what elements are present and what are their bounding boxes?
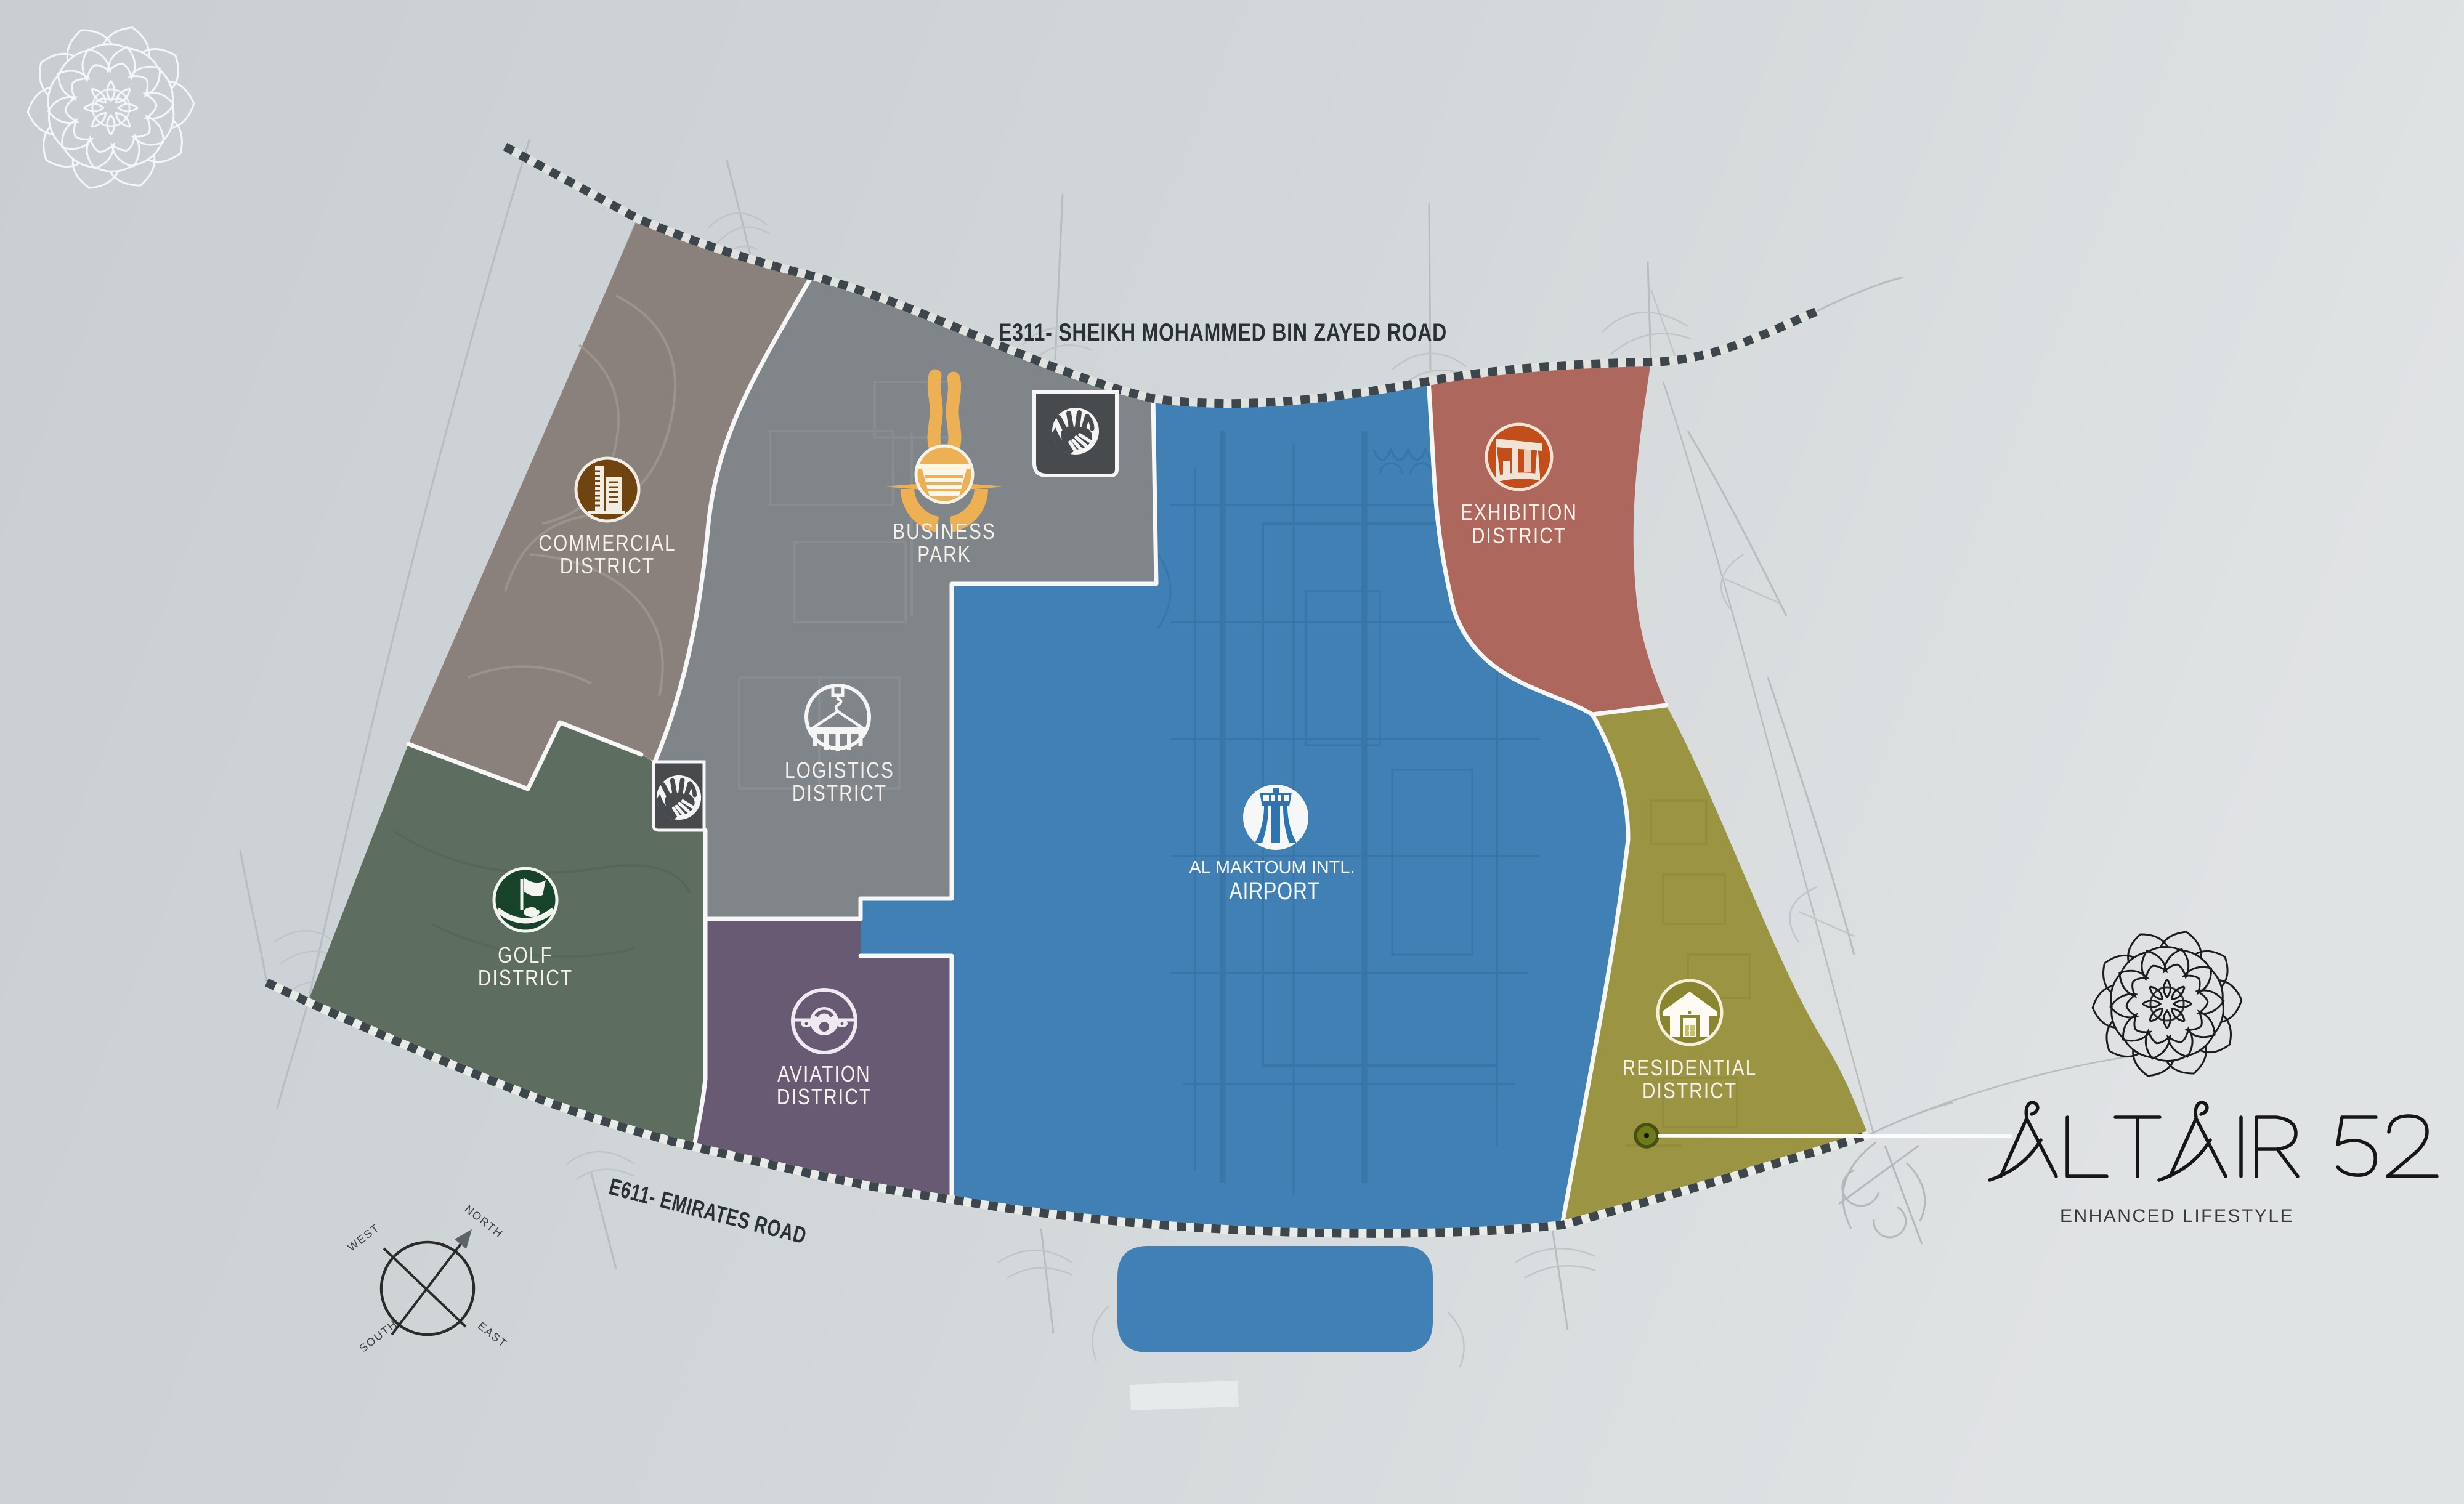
svg-text:DISTRICT: DISTRICT [560, 554, 655, 578]
svg-text:LOGISTICS: LOGISTICS [785, 758, 894, 783]
svg-text:PARK: PARK [917, 542, 971, 567]
svg-text:BUSINESS: BUSINESS [893, 519, 996, 544]
svg-text:AIRPORT: AIRPORT [1229, 877, 1319, 905]
svg-text:DISTRICT: DISTRICT [792, 781, 887, 806]
svg-text:E311- SHEIKH MOHAMMED BIN ZAYE: E311- SHEIKH MOHAMMED BIN ZAYED ROAD [999, 318, 1447, 346]
svg-text:ENHANCED LIFESTYLE: ENHANCED LIFESTYLE [2060, 1206, 2294, 1226]
svg-text:COMMERCIAL: COMMERCIAL [538, 531, 676, 556]
svg-text:DISTRICT: DISTRICT [1642, 1078, 1737, 1103]
svg-text:GOLF: GOLF [498, 943, 553, 968]
svg-text:DISTRICT: DISTRICT [478, 966, 573, 990]
svg-text:RESIDENTIAL: RESIDENTIAL [1623, 1056, 1757, 1080]
svg-text:AL MAKTOUM INTL.: AL MAKTOUM INTL. [1189, 858, 1355, 878]
svg-text:AVIATION: AVIATION [777, 1062, 871, 1086]
svg-text:EXHIBITION: EXHIBITION [1461, 500, 1578, 525]
svg-text:DISTRICT: DISTRICT [777, 1085, 872, 1109]
svg-text:DISTRICT: DISTRICT [1472, 524, 1566, 548]
